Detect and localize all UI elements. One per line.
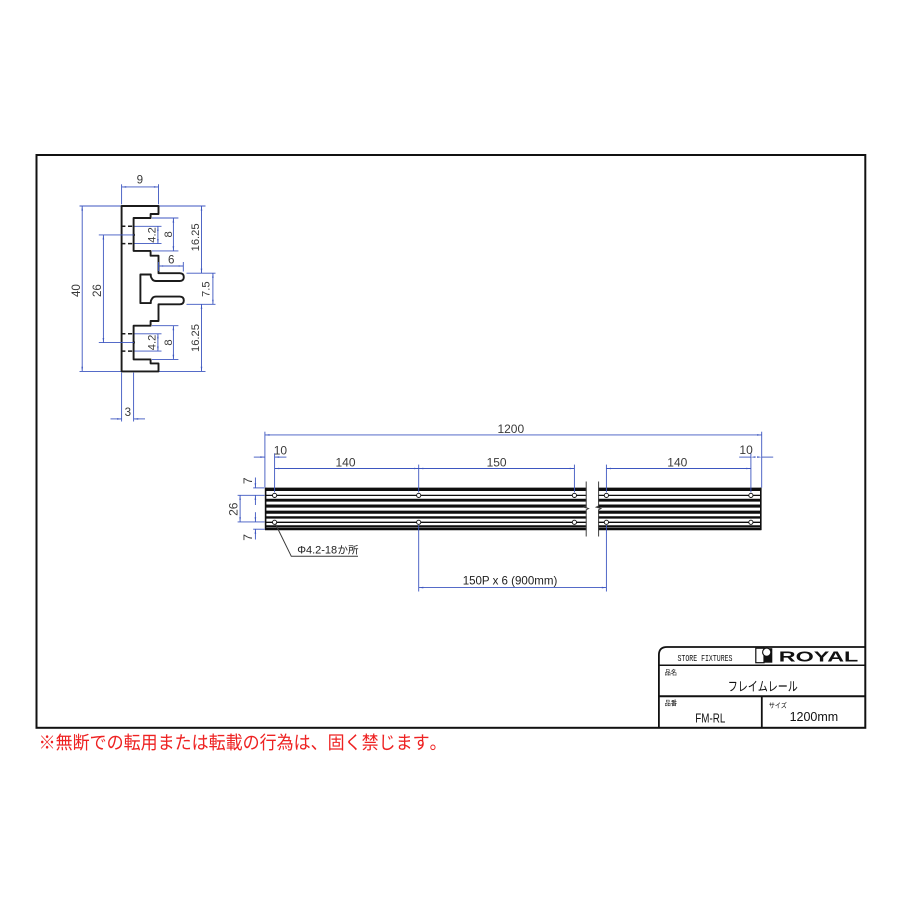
- svg-text:10: 10: [739, 443, 753, 457]
- svg-text:7: 7: [241, 534, 255, 541]
- svg-text:7.5: 7.5: [201, 281, 213, 297]
- svg-text:16.25: 16.25: [190, 223, 202, 251]
- svg-text:150P x 6 (900mm): 150P x 6 (900mm): [463, 573, 558, 587]
- svg-text:STORE FIXTURES: STORE FIXTURES: [678, 653, 733, 664]
- svg-text:150: 150: [487, 456, 507, 470]
- svg-text:40: 40: [70, 284, 83, 297]
- svg-text:4.2: 4.2: [147, 227, 159, 243]
- svg-text:9: 9: [137, 174, 143, 187]
- svg-text:26: 26: [226, 502, 240, 516]
- svg-text:ROYAL: ROYAL: [779, 649, 859, 665]
- svg-text:3: 3: [125, 406, 131, 419]
- svg-text:Φ4.2-18: Φ4.2-18: [297, 545, 337, 557]
- svg-text:8: 8: [163, 339, 175, 345]
- svg-text:4.2: 4.2: [147, 335, 159, 351]
- svg-text:16.25: 16.25: [190, 324, 202, 352]
- svg-text:140: 140: [335, 456, 355, 470]
- svg-text:FM-RL: FM-RL: [695, 710, 725, 725]
- svg-text:10: 10: [274, 443, 288, 457]
- svg-text:6: 6: [168, 253, 174, 266]
- svg-text:1200mm: 1200mm: [790, 710, 839, 724]
- svg-text:1200: 1200: [497, 422, 524, 436]
- svg-text:8: 8: [163, 231, 175, 237]
- svg-text:140: 140: [667, 456, 687, 470]
- svg-text:26: 26: [91, 284, 104, 297]
- svg-text:7: 7: [241, 477, 255, 484]
